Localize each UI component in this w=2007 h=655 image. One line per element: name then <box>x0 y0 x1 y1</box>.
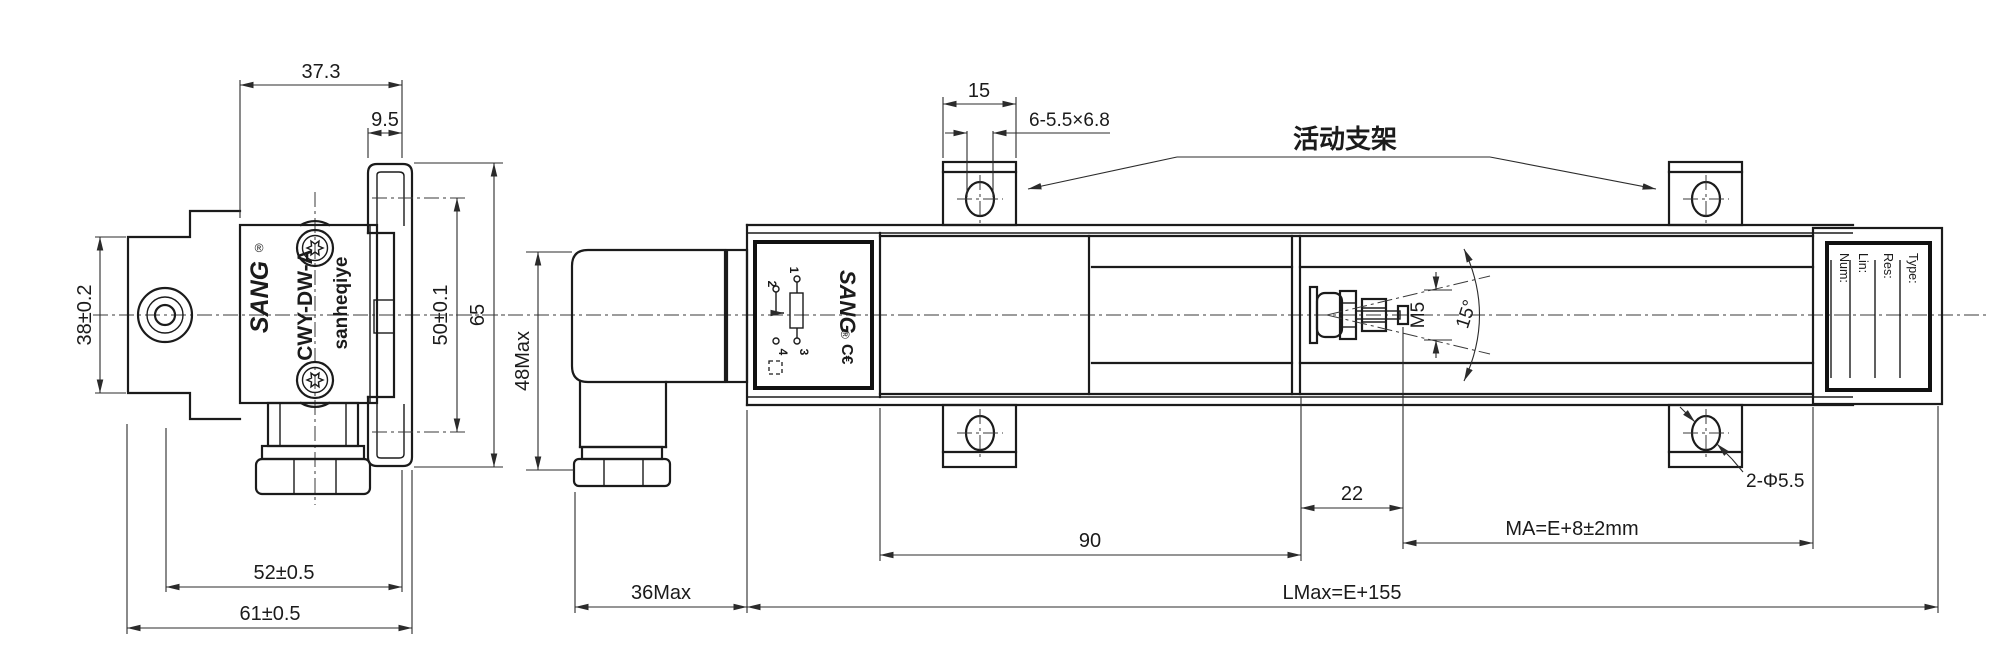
dim-slots: 6-5.5×6.8 <box>1029 110 1110 131</box>
dim-swivel-angle: 15° <box>1452 297 1481 331</box>
dim-mounting: MA=E+8±2mm <box>1505 518 1638 540</box>
dim-top-width: 37.3 <box>302 61 341 83</box>
company-text: sanheqiye <box>331 257 352 350</box>
nameplate-res: Res: <box>1881 253 1895 279</box>
dim-holes: 2-Φ5.5 <box>1746 471 1804 492</box>
bracket-bottom-left <box>943 405 1016 467</box>
right-extension-lines <box>526 97 1938 613</box>
left-view: ® SANG CWY-DW-A sanheqiye 37.3 9.5 <box>74 61 506 634</box>
brand-logo: SANG <box>246 261 274 333</box>
cable-gland-bottom <box>256 403 370 494</box>
potentiometer-symbol <box>790 293 803 328</box>
din-connector <box>572 250 747 486</box>
label-dashed-box <box>769 361 782 374</box>
dim-axis-to-clip: 52±0.5 <box>253 562 314 584</box>
dim-connector-depth: 36Max <box>631 582 691 604</box>
right-view: 1 2 3 4 SANG ® C€ <box>430 80 1988 613</box>
label-reg-mark: ® <box>838 330 852 339</box>
drawing-canvas: ® SANG CWY-DW-A sanheqiye 37.3 9.5 <box>0 0 2007 655</box>
dim-rod-extension: 22 <box>1341 483 1363 505</box>
brand-reg-mark: ® <box>255 241 264 255</box>
end-cap: Type: Res: Lin: Num: <box>1813 228 1942 404</box>
bracket-callout: 活动支架 <box>1028 124 1656 189</box>
nameplate-lin: Lin: <box>1856 253 1870 273</box>
dim-body-length: 90 <box>1079 530 1101 552</box>
dim-overall-width: 61±0.5 <box>239 603 300 625</box>
nameplate-num: Num: <box>1837 253 1851 283</box>
pin-1-label: 1 <box>787 267 801 274</box>
bracket-top-right <box>1669 162 1742 225</box>
left-dimensions: 37.3 9.5 38±0.2 50±0.1 65 52±0.5 61±0.5 <box>74 61 494 628</box>
pin-4-label: 4 <box>776 349 790 356</box>
dim-flange-height: 38±0.2 <box>74 284 96 345</box>
dim-clip-width: 9.5 <box>371 109 399 131</box>
bracket-callout-text: 活动支架 <box>1293 124 1397 154</box>
nameplate-type: Type: <box>1906 253 1920 284</box>
dim-bracket-width: 15 <box>968 80 990 102</box>
bracket-top-left <box>943 162 1016 225</box>
dim-connector-height: 48Max <box>512 331 534 391</box>
pin-2-label: 2 <box>765 281 779 288</box>
sensor-engineering-drawing: ® SANG CWY-DW-A sanheqiye 37.3 9.5 <box>0 0 2007 655</box>
model-text: CWY-DW-A <box>294 249 317 361</box>
dim-thread: M5 <box>1408 302 1429 328</box>
label-ce-mark: C€ <box>838 344 855 365</box>
dim-total-length: LMax=E+155 <box>1283 582 1402 604</box>
wiper-arrow <box>776 292 784 313</box>
pin-3-label: 3 <box>797 349 811 356</box>
label-brand: SANG <box>835 270 860 334</box>
